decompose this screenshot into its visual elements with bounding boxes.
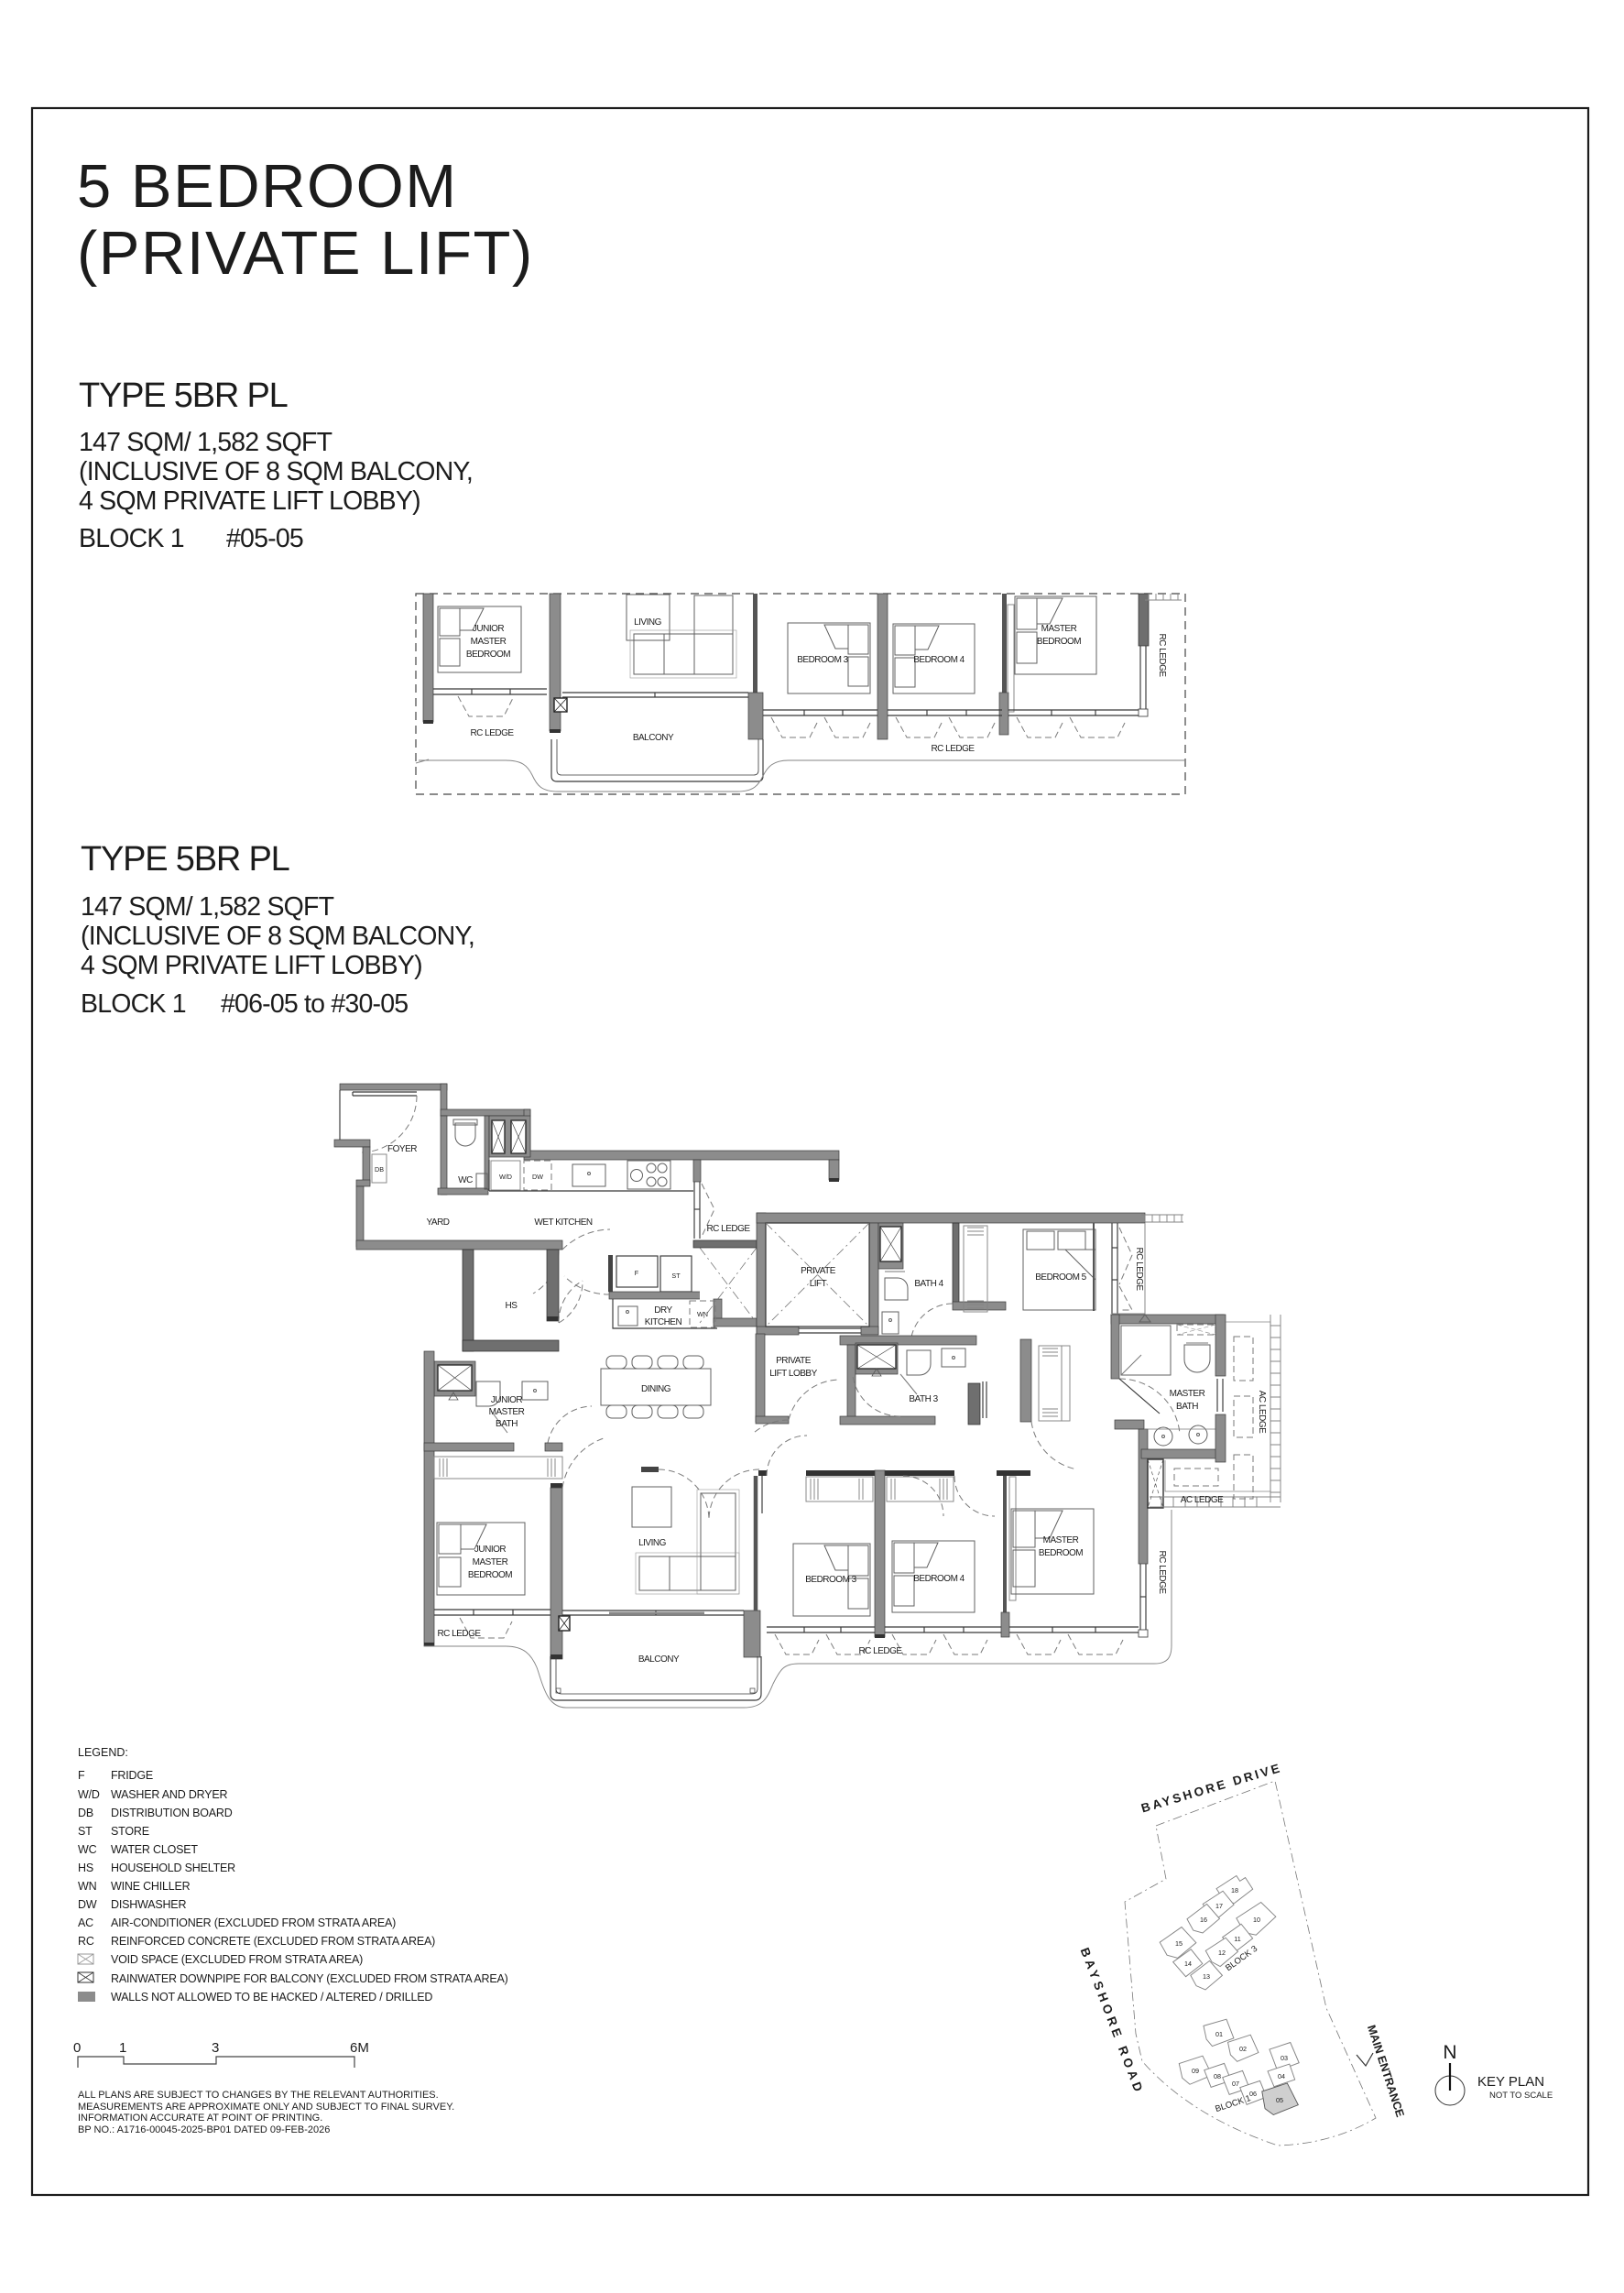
svg-text:DW: DW: [78, 1898, 97, 1911]
svg-text:AIR-CONDITIONER (EXCLUDED FROM: AIR-CONDITIONER (EXCLUDED FROM STRATA AR…: [111, 1916, 396, 1929]
svg-text:RC LEDGE: RC LEDGE: [858, 1646, 902, 1656]
svg-text:ALL PLANS ARE SUBJECT TO CHANG: ALL PLANS ARE SUBJECT TO CHANGES BY THE …: [78, 2090, 439, 2101]
svg-text:LIFT: LIFT: [810, 1279, 827, 1289]
svg-text:KITCHEN: KITCHEN: [645, 1317, 682, 1327]
svg-text:BLOCK 1: BLOCK 1: [81, 989, 186, 1019]
svg-text:LIVING: LIVING: [634, 617, 662, 628]
svg-text:AC LEDGE: AC LEDGE: [1257, 1391, 1267, 1434]
svg-text:RC LEDGE: RC LEDGE: [706, 1224, 750, 1234]
svg-text:4 SQM PRIVATE LIFT LOBBY): 4 SQM PRIVATE LIFT LOBBY): [81, 951, 422, 980]
svg-text:09: 09: [1192, 2067, 1199, 2075]
svg-text:147 SQM/ 1,582 SQFT: 147 SQM/ 1,582 SQFT: [79, 428, 332, 457]
svg-text:RC LEDGE: RC LEDGE: [1157, 1550, 1167, 1594]
svg-text:BATH 4: BATH 4: [914, 1279, 943, 1289]
svg-text:MASTER: MASTER: [1043, 1535, 1079, 1545]
svg-text:BEDROOM 4: BEDROOM 4: [913, 1574, 965, 1584]
svg-text:PRIVATE: PRIVATE: [801, 1266, 836, 1276]
svg-text:17: 17: [1215, 1902, 1223, 1910]
svg-text:JUNIOR: JUNIOR: [473, 624, 505, 634]
svg-text:MASTER: MASTER: [1041, 624, 1077, 634]
svg-text:LEGEND:: LEGEND:: [78, 1746, 128, 1759]
svg-text:WC: WC: [458, 1175, 473, 1185]
svg-text:W/D: W/D: [499, 1173, 512, 1181]
svg-text:WINE CHILLER: WINE CHILLER: [111, 1880, 191, 1893]
svg-text:ST: ST: [671, 1272, 681, 1280]
svg-text:MASTER: MASTER: [1170, 1389, 1205, 1399]
svg-text:10: 10: [1253, 1916, 1260, 1924]
svg-text:147 SQM/ 1,582 SQFT: 147 SQM/ 1,582 SQFT: [81, 892, 334, 922]
svg-text:F: F: [635, 1269, 639, 1277]
svg-text:(INCLUSIVE OF 8 SQM BALCONY,: (INCLUSIVE OF 8 SQM BALCONY,: [79, 457, 473, 486]
svg-text:FOYER: FOYER: [387, 1144, 417, 1154]
svg-text:#05-05: #05-05: [226, 524, 303, 553]
svg-text:18: 18: [1231, 1886, 1238, 1894]
svg-text:BEDROOM: BEDROOM: [466, 650, 510, 660]
svg-text:07: 07: [1232, 2080, 1239, 2088]
svg-text:RC LEDGE: RC LEDGE: [437, 1629, 481, 1639]
svg-text:HS: HS: [506, 1301, 518, 1311]
svg-text:WALLS NOT ALLOWED TO BE HACKED: WALLS NOT ALLOWED TO BE HACKED / ALTERED…: [111, 1991, 432, 2004]
svg-text:DISTRIBUTION BOARD: DISTRIBUTION BOARD: [111, 1807, 233, 1819]
svg-text:06: 06: [1249, 2090, 1257, 2098]
svg-text:RAINWATER DOWNPIPE FOR BALCONY: RAINWATER DOWNPIPE FOR BALCONY (EXCLUDED…: [111, 1972, 508, 1985]
svg-text:F: F: [78, 1769, 85, 1782]
svg-text:RC LEDGE: RC LEDGE: [931, 744, 975, 754]
svg-text:PRIVATE: PRIVATE: [776, 1356, 812, 1366]
svg-text:BEDROOM: BEDROOM: [1039, 1548, 1083, 1558]
svg-text:DB: DB: [78, 1807, 93, 1819]
svg-text:TYPE 5BR PL: TYPE 5BR PL: [79, 377, 288, 415]
svg-text:WATER CLOSET: WATER CLOSET: [111, 1843, 198, 1856]
svg-text:02: 02: [1239, 2045, 1247, 2053]
svg-text:BEDROOM 3: BEDROOM 3: [797, 655, 848, 665]
svg-text:JUNIOR: JUNIOR: [491, 1395, 523, 1405]
svg-text:(INCLUSIVE OF 8 SQM BALCONY,: (INCLUSIVE OF 8 SQM BALCONY,: [81, 922, 474, 951]
svg-text:12: 12: [1218, 1949, 1226, 1957]
svg-text:WET KITCHEN: WET KITCHEN: [534, 1217, 592, 1228]
svg-text:N: N: [1443, 2042, 1456, 2063]
svg-text:REINFORCED CONCRETE (EXCLUDED: REINFORCED CONCRETE (EXCLUDED FROM STRAT…: [111, 1935, 435, 1948]
svg-text:VOID SPACE (EXCLUDED FROM STRA: VOID SPACE (EXCLUDED FROM STRATA AREA): [111, 1953, 363, 1966]
svg-text:NOT TO SCALE: NOT TO SCALE: [1489, 2091, 1553, 2101]
svg-text:HOUSEHOLD SHELTER: HOUSEHOLD SHELTER: [111, 1862, 235, 1874]
svg-text:AC LEDGE: AC LEDGE: [1181, 1495, 1224, 1505]
svg-text:LIVING: LIVING: [638, 1538, 667, 1548]
svg-text:DISHWASHER: DISHWASHER: [111, 1898, 186, 1911]
svg-text:03: 03: [1281, 2054, 1288, 2062]
svg-text:YARD: YARD: [426, 1217, 449, 1228]
svg-text:11: 11: [1234, 1935, 1240, 1943]
svg-text:3: 3: [212, 2040, 219, 2056]
svg-text:RC LEDGE: RC LEDGE: [470, 728, 514, 738]
svg-text:MEASUREMENTS ARE APPROXIMATE O: MEASUREMENTS ARE APPROXIMATE ONLY AND SU…: [78, 2102, 454, 2113]
svg-text:BALCONY: BALCONY: [633, 733, 674, 743]
svg-text:04: 04: [1278, 2072, 1285, 2080]
svg-text:14: 14: [1184, 1960, 1192, 1968]
svg-text:BATH: BATH: [1176, 1402, 1198, 1412]
svg-text:DB: DB: [375, 1165, 384, 1174]
svg-text:BP NO.: A1716-00045-2025-BP01: BP NO.: A1716-00045-2025-BP01 DATED 09-F…: [78, 2124, 330, 2135]
svg-text:KEY PLAN: KEY PLAN: [1477, 2074, 1544, 2090]
svg-text:MASTER: MASTER: [471, 637, 507, 647]
svg-text:05: 05: [1276, 2096, 1283, 2104]
svg-text:(PRIVATE LIFT): (PRIVATE LIFT): [77, 219, 534, 288]
svg-text:HS: HS: [78, 1862, 93, 1874]
svg-text:LIFT LOBBY: LIFT LOBBY: [769, 1369, 817, 1379]
svg-text:WN: WN: [697, 1310, 708, 1318]
svg-text:BEDROOM 4: BEDROOM 4: [913, 655, 965, 665]
svg-text:AC: AC: [78, 1916, 93, 1929]
svg-text:W/D: W/D: [78, 1788, 100, 1801]
svg-text:TYPE 5BR PL: TYPE 5BR PL: [81, 840, 289, 879]
svg-text:WC: WC: [78, 1843, 97, 1856]
svg-text:BATH 3: BATH 3: [909, 1394, 938, 1404]
svg-text:DW: DW: [532, 1173, 543, 1181]
svg-text:16: 16: [1200, 1916, 1207, 1924]
svg-text:4 SQM PRIVATE LIFT LOBBY): 4 SQM PRIVATE LIFT LOBBY): [79, 486, 420, 516]
svg-text:5 BEDROOM: 5 BEDROOM: [77, 152, 458, 221]
svg-text:JUNIOR: JUNIOR: [474, 1545, 507, 1555]
svg-text:#06-05 to #30-05: #06-05 to #30-05: [221, 989, 408, 1019]
svg-text:BEDROOM 5: BEDROOM 5: [1035, 1272, 1086, 1283]
svg-text:BALCONY: BALCONY: [638, 1654, 680, 1665]
svg-text:STORE: STORE: [111, 1825, 149, 1838]
svg-text:RC: RC: [78, 1935, 94, 1948]
svg-text:BATH: BATH: [496, 1419, 518, 1429]
svg-text:RC LEDGE: RC LEDGE: [1134, 1247, 1144, 1291]
svg-text:1: 1: [119, 2040, 126, 2056]
svg-text:BEDROOM: BEDROOM: [468, 1570, 512, 1580]
svg-text:WN: WN: [78, 1880, 97, 1893]
svg-text:WASHER AND DRYER: WASHER AND DRYER: [111, 1788, 228, 1801]
svg-text:FRIDGE: FRIDGE: [111, 1769, 153, 1782]
svg-text:INFORMATION ACCURATE AT POINT: INFORMATION ACCURATE AT POINT OF PRINTIN…: [78, 2113, 322, 2124]
svg-text:DRY: DRY: [654, 1305, 672, 1316]
svg-text:08: 08: [1214, 2072, 1221, 2080]
svg-text:RC LEDGE: RC LEDGE: [1157, 633, 1167, 677]
svg-text:DINING: DINING: [641, 1384, 671, 1394]
svg-text:BEDROOM: BEDROOM: [1037, 637, 1081, 647]
svg-text:BEDROOM 3: BEDROOM 3: [805, 1575, 856, 1585]
svg-text:01: 01: [1215, 2030, 1223, 2038]
svg-text:ST: ST: [78, 1825, 93, 1838]
svg-text:BLOCK 1: BLOCK 1: [79, 524, 184, 553]
svg-text:13: 13: [1203, 1972, 1210, 1981]
svg-text:MASTER: MASTER: [473, 1557, 508, 1567]
svg-text:6M: 6M: [350, 2040, 369, 2056]
svg-text:15: 15: [1175, 1939, 1183, 1948]
svg-text:MASTER: MASTER: [489, 1407, 525, 1417]
svg-text:0: 0: [73, 2040, 81, 2056]
